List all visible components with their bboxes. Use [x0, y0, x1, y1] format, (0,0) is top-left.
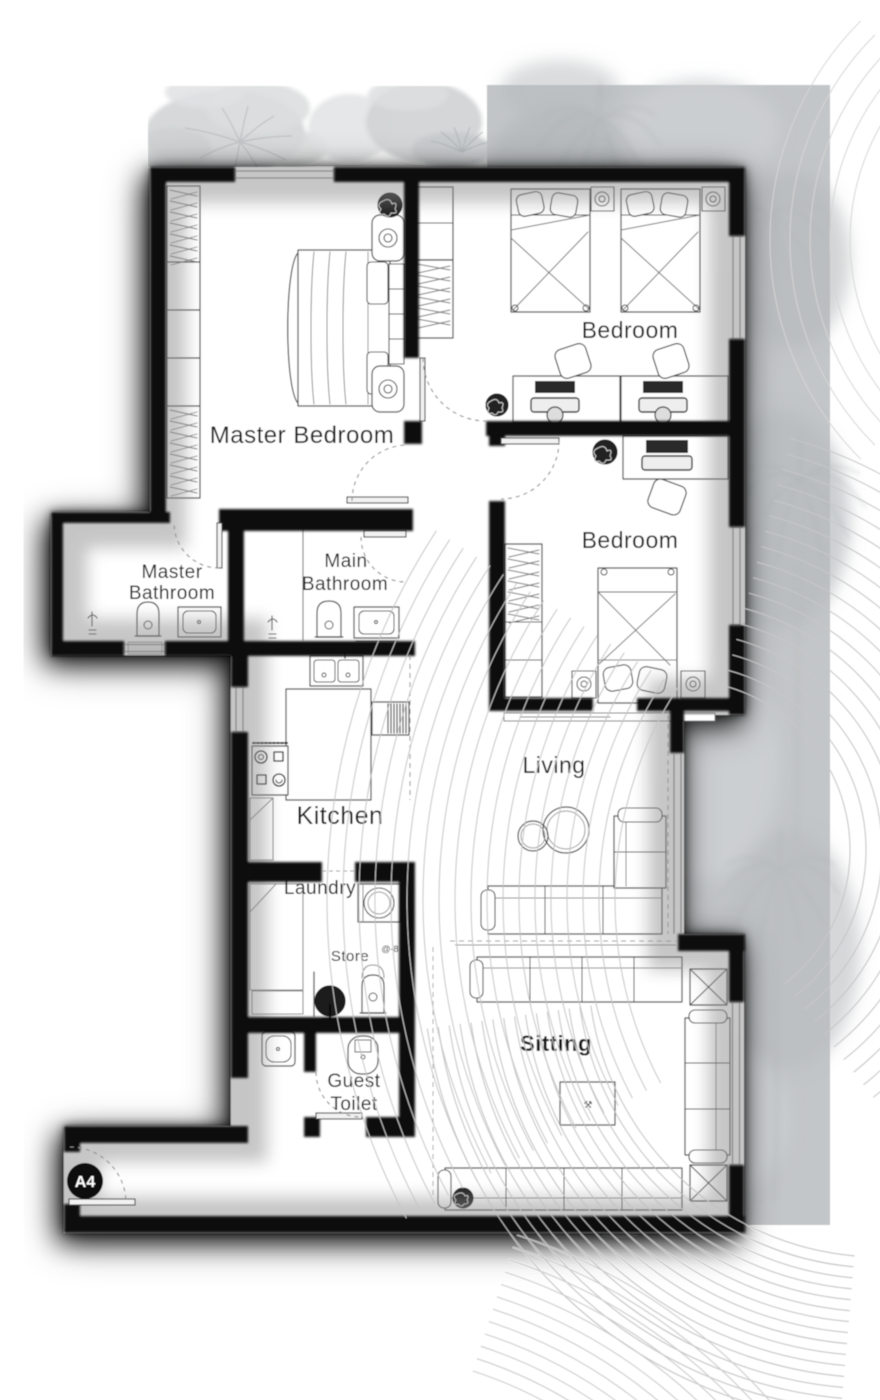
- svg-text:Kitchen: Kitchen: [297, 802, 384, 830]
- svg-text:Laundry: Laundry: [284, 878, 356, 899]
- svg-text:Bathroom: Bathroom: [129, 583, 215, 604]
- svg-text:A4: A4: [75, 1174, 96, 1191]
- svg-text:Master: Master: [141, 562, 202, 583]
- svg-text:Store: Store: [331, 948, 369, 965]
- svg-text:Living: Living: [522, 752, 585, 778]
- svg-text:Master Bedroom: Master Bedroom: [210, 422, 394, 449]
- svg-text:Bathroom: Bathroom: [302, 574, 388, 595]
- svg-text:Bedroom: Bedroom: [582, 527, 679, 553]
- svg-text:Bedroom: Bedroom: [582, 317, 679, 343]
- svg-text:Toilet: Toilet: [330, 1094, 378, 1115]
- svg-text:Main: Main: [324, 551, 367, 572]
